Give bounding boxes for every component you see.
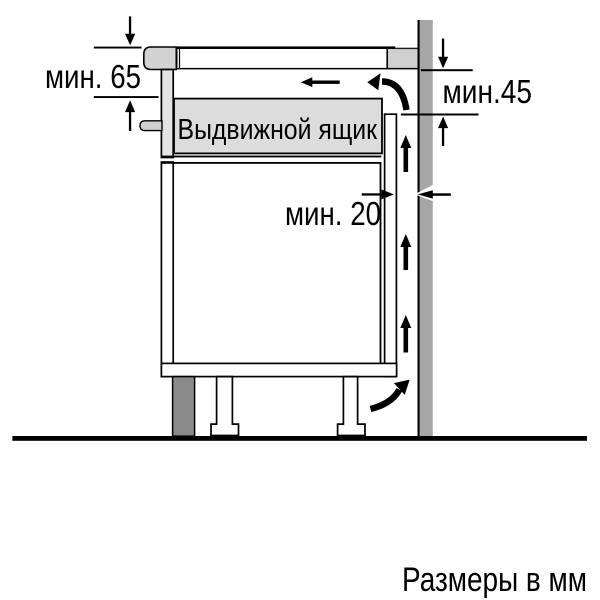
- svg-text:Размеры в мм: Размеры в мм: [402, 561, 587, 599]
- svg-text:мин. 65: мин. 65: [45, 58, 141, 95]
- svg-text:мин. 20: мин. 20: [285, 195, 381, 232]
- svg-text:мин.45: мин.45: [443, 73, 533, 110]
- svg-text:Выдвижной ящик: Выдвижной ящик: [178, 114, 378, 146]
